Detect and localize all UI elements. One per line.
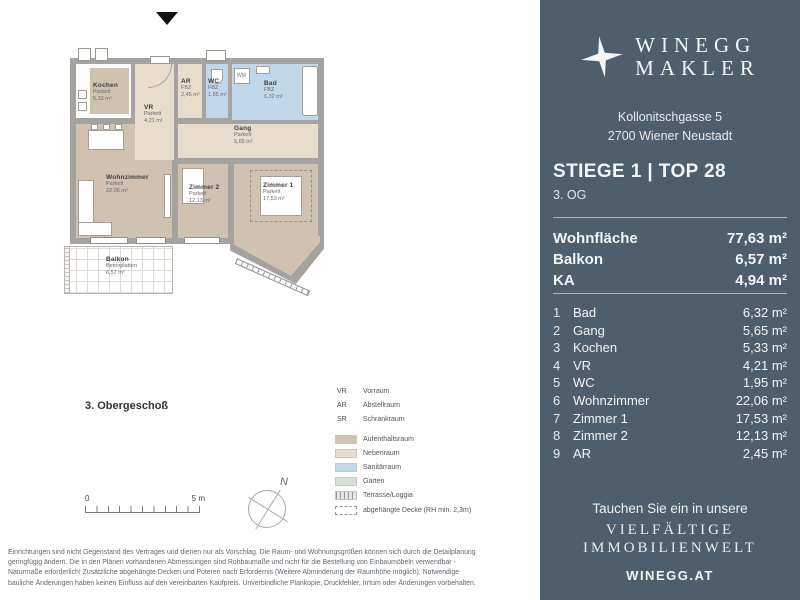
promo-headline-line1: VIELFÄLTIGE (540, 521, 800, 539)
promo-block: Tauchen Sie ein in unsere VIELFÄLTIGE IM… (540, 501, 800, 583)
label-ar: AR FBZ 2,45 m² (181, 78, 200, 99)
kitchen-sink (78, 90, 87, 99)
entry-door-opening (150, 56, 170, 64)
address-city: 2700 Wiener Neustadt (540, 127, 800, 146)
disclaimer-line-4: bauliche Änderungen haben keinen Einflus… (8, 579, 536, 589)
balkon-railing (64, 246, 70, 294)
label-zimmer2: Zimmer 2 Parkett 12,13 m² (189, 184, 220, 205)
window-wohnzimmer (90, 237, 128, 244)
legend-abbr-ar: AR Abstellraum (335, 400, 545, 414)
legend-swatch-nebenraum: Nebenraum (335, 448, 545, 462)
legend-abbr-vr: VR Vorraum (335, 386, 545, 400)
divider (553, 293, 787, 294)
room-list-row: 6 Wohnzimmer 22,06 m² (553, 392, 787, 410)
label-balkon: Balkon Betonplatten 6,57 m² (106, 256, 137, 277)
star-icon (577, 32, 627, 82)
chair-3 (115, 124, 122, 130)
brand-logo: WINEGG MAKLER (540, 34, 800, 80)
washing-machine-label: WM (237, 73, 246, 79)
entrance-arrow-icon (156, 12, 178, 25)
brand-name-line1: WINEGG (635, 34, 760, 57)
room-list-row: 8 Zimmer 2 12,13 m² (553, 427, 787, 445)
label-zimmer1: Zimmer 1 Parkett 17,53 m² (263, 182, 294, 203)
summary-row-wohnflaeche: Wohnfläche 77,63 m² (553, 228, 787, 249)
legend-swatch-terrasse: Terrasse/Loggia (335, 490, 545, 504)
compass-icon: N (246, 476, 302, 532)
chair-2 (103, 124, 110, 130)
legend-swatch-sanitaerraum: Sanitärraum (335, 462, 545, 476)
room-list-row: 5 WC 1,95 m² (553, 374, 787, 392)
flyer-page: WM Kochen Parkett 5,33 m² VR Parkett 4,2… (0, 0, 800, 600)
legend: VR Vorraum AR Abstellraum SR Schrankraum… (335, 386, 545, 519)
swatch-sanitaerraum (335, 463, 357, 472)
window-zimmer2 (184, 237, 220, 244)
brand-name-line2: MAKLER (635, 57, 760, 80)
website-link[interactable]: WINEGG.AT (540, 568, 800, 583)
label-vr: VR Parkett 4,21 m² (144, 104, 163, 125)
floor-title: 3. Obergeschoß (85, 400, 168, 412)
label-wc: WC FBZ 1,95 m² (208, 78, 227, 99)
swatch-aufenthaltsraum (335, 435, 357, 444)
bathtub (302, 66, 318, 116)
address-street: Kollonitschgasse 5 (540, 108, 800, 127)
bad-sink (256, 66, 270, 74)
promo-intro: Tauchen Sie ein in unsere (540, 501, 800, 516)
label-bad: Bad FBZ 6,32 m² (264, 80, 283, 101)
scale-start-label: 0 (85, 494, 89, 503)
scale-bar: 0 5 m (85, 494, 205, 513)
label-kochen: Kochen Parkett 5,33 m² (93, 82, 118, 103)
summary-row-ka: KA 4,94 m² (553, 270, 787, 291)
compass-north-label: N (280, 476, 288, 488)
legend-swatch-garten: Garten (335, 476, 545, 490)
scale-end-label: 5 m (192, 494, 205, 503)
dining-table (88, 130, 124, 150)
room-list-row: 1 Bad 6,32 m² (553, 304, 787, 322)
unit-floor: 3. OG (553, 188, 586, 202)
promo-headline-line2: IMMOBILIENWELT (540, 539, 800, 557)
room-list-row: 3 Kochen 5,33 m² (553, 339, 787, 357)
scale-ruler (85, 506, 200, 513)
unit-title: STIEGE 1 | TOP 28 (553, 161, 726, 183)
legend-swatch-decke: abgehängte Decke (RH min. 2,3m) (335, 505, 545, 519)
room-list: 1 Bad 6,32 m² 2 Gang 5,65 m² 3 Kochen 5,… (553, 304, 787, 462)
disclaimer-line-2: geringfügig ändern. Die in den Plänen vo… (8, 558, 536, 568)
summary-row-balkon: Balkon 6,57 m² (553, 249, 787, 270)
swatch-terrasse-loggia (335, 491, 357, 500)
swatch-abgehaengte-decke (335, 506, 357, 515)
tv-board (164, 174, 171, 218)
wall-niche-1 (78, 48, 91, 61)
swatch-nebenraum (335, 449, 357, 458)
legend-swatch-aufenthaltsraum: Aufenthaltsraum (335, 434, 545, 448)
info-panel: WINEGG MAKLER Kollonitschgasse 5 2700 Wi… (540, 0, 800, 600)
shaft-wc (206, 50, 226, 61)
disclaimer: Einrichtungen sind nicht Gegenstand des … (8, 548, 536, 589)
room-list-row: 4 VR 4,21 m² (553, 357, 787, 375)
property-address: Kollonitschgasse 5 2700 Wiener Neustadt (540, 108, 800, 146)
kitchen-stove (78, 102, 87, 111)
swatch-garten (335, 477, 357, 486)
label-wohnzimmer: Wohnzimmer Parkett 22,06 m² (106, 174, 149, 195)
disclaimer-line-3: Naturmaße erforderlich! Zusätzliche abge… (8, 568, 536, 578)
room-list-row: 9 AR 2,45 m² (553, 445, 787, 463)
chair-1 (91, 124, 98, 130)
label-gang: Gang Parkett 5,65 m² (234, 125, 253, 146)
legend-abbr-sr: SR Schrankraum (335, 414, 545, 428)
sofa-side (78, 180, 94, 228)
balcony-door (136, 237, 166, 244)
room-list-row: 7 Zimmer 1 17,53 m² (553, 410, 787, 428)
wall-niche-2 (95, 48, 108, 61)
room-list-row: 2 Gang 5,65 m² (553, 322, 787, 340)
disclaimer-line-1: Einrichtungen sind nicht Gegenstand des … (8, 548, 536, 558)
divider (553, 217, 787, 218)
sofa-base (78, 222, 112, 236)
floor-plan: WM Kochen Parkett 5,33 m² VR Parkett 4,2… (62, 12, 332, 312)
area-summary: Wohnfläche 77,63 m² Balkon 6,57 m² KA 4,… (553, 228, 787, 291)
